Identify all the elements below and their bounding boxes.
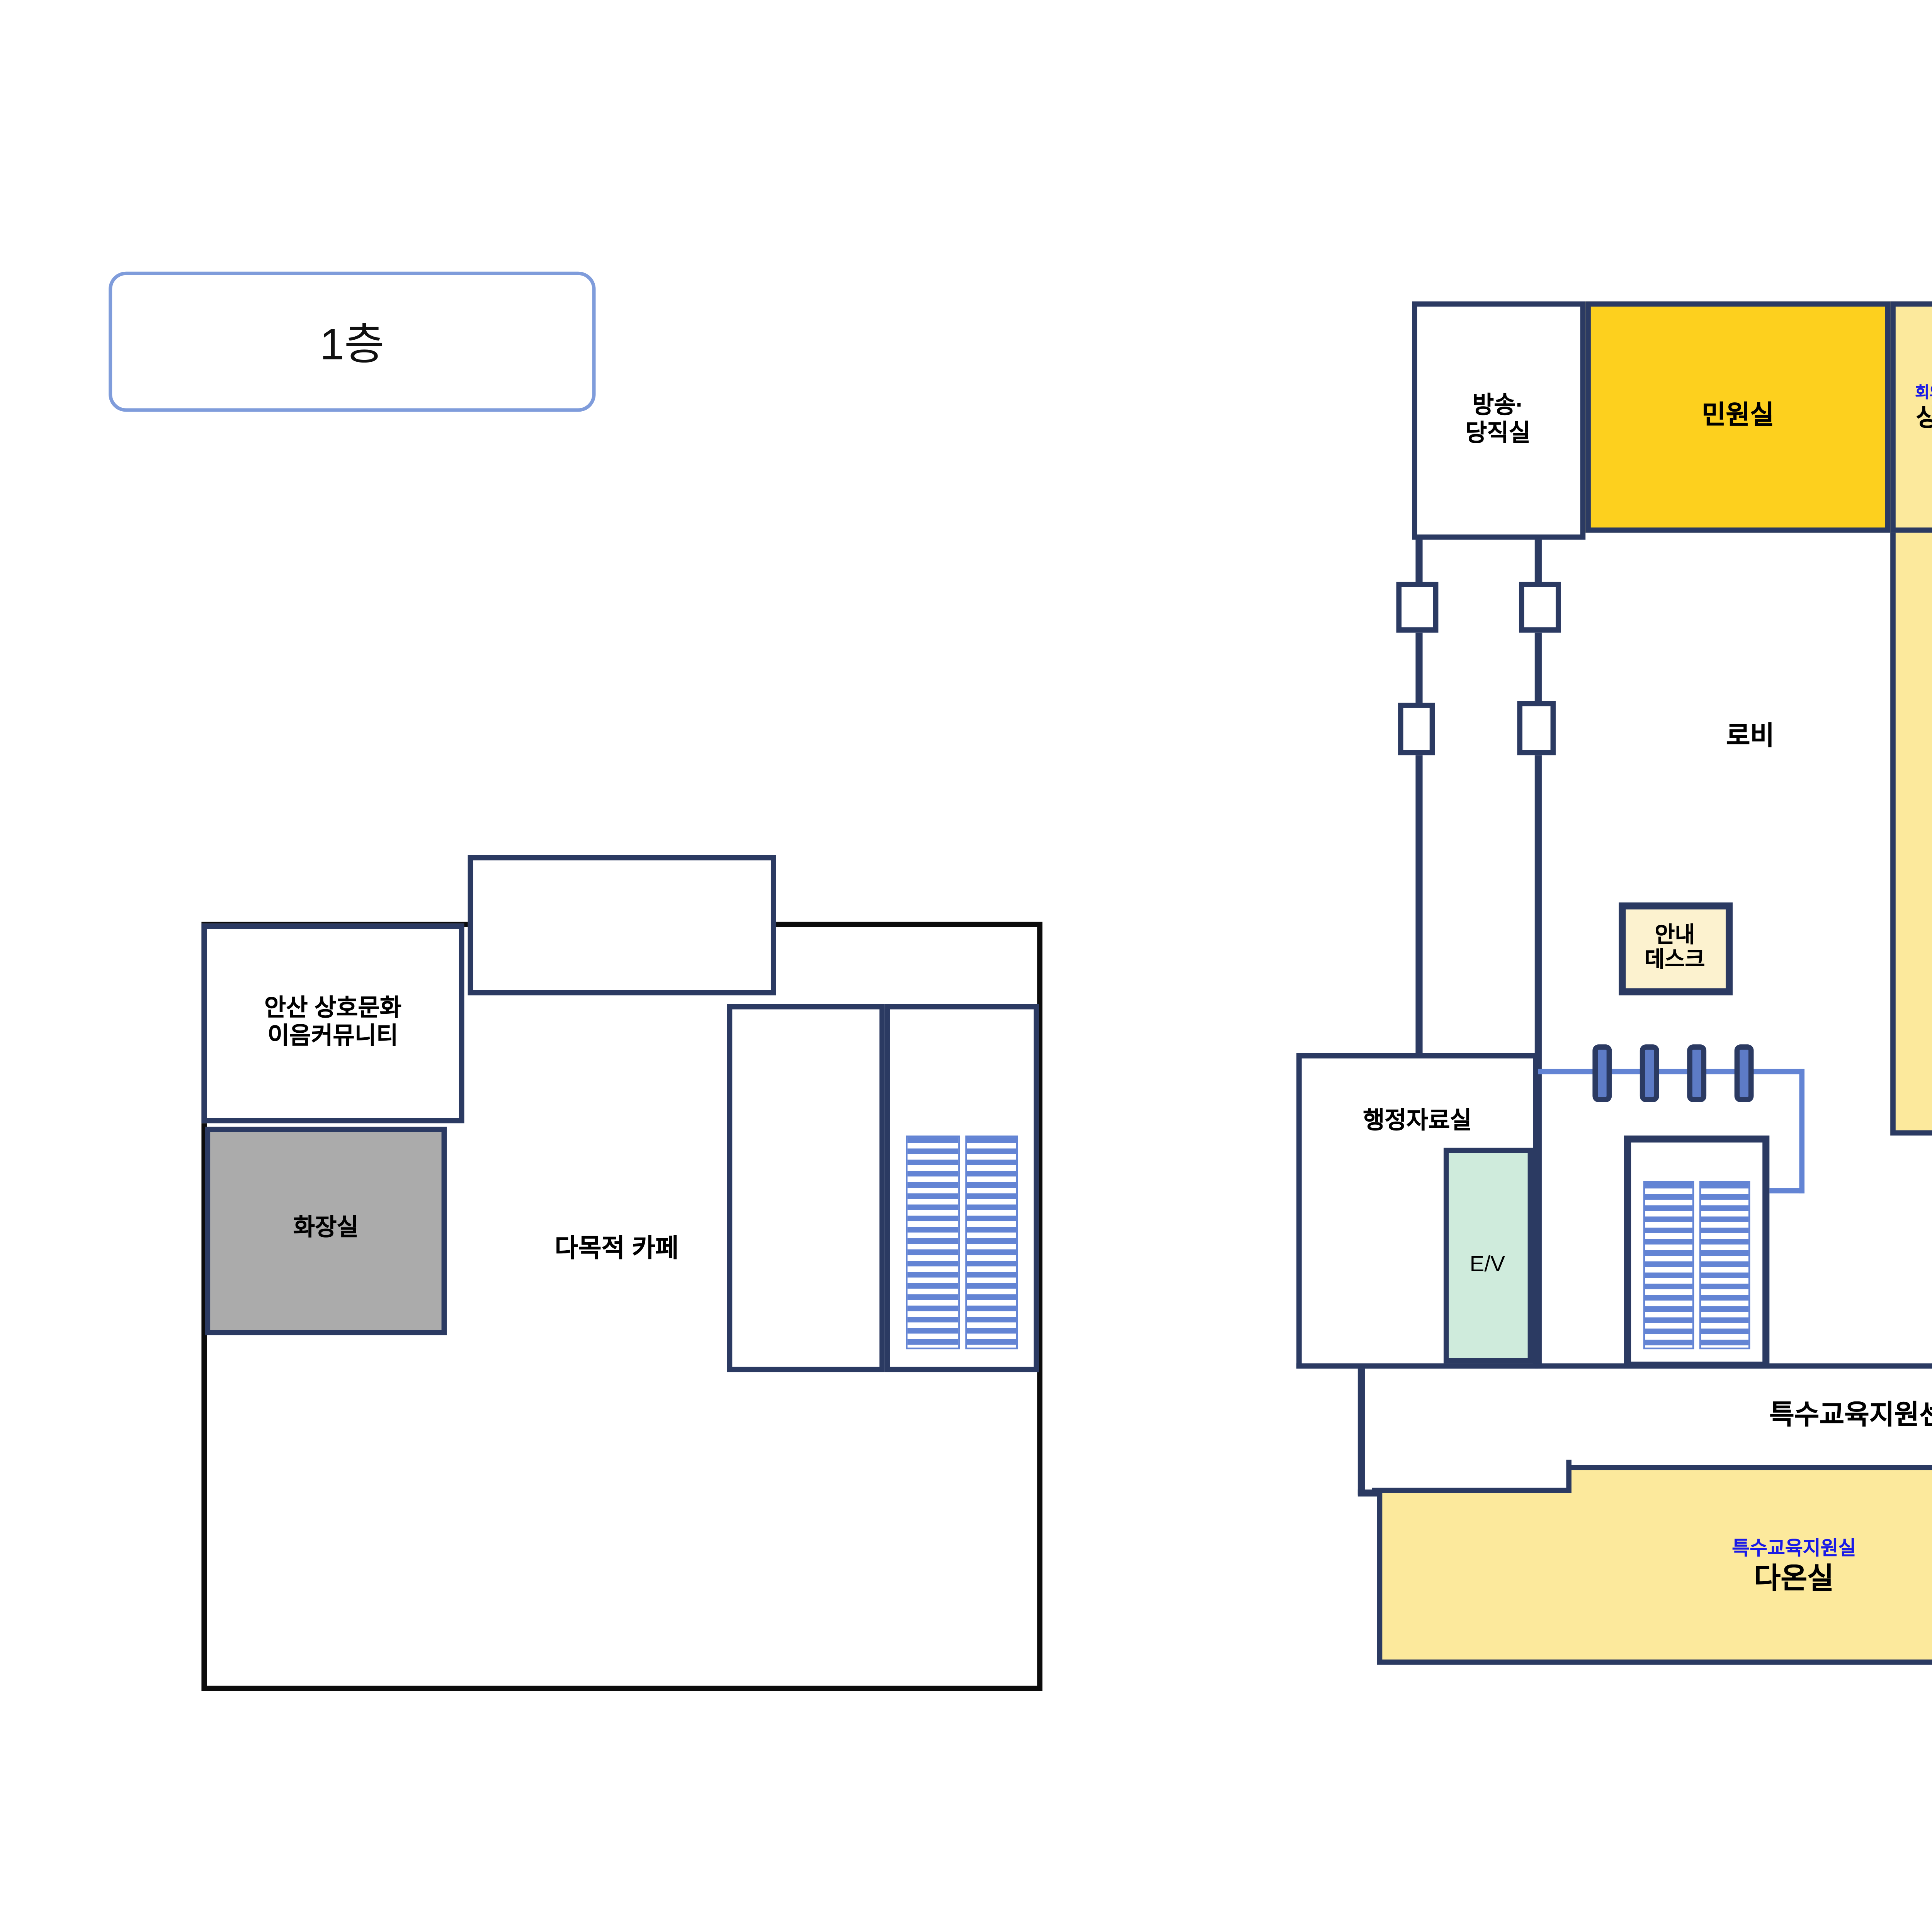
room-daon-label: 특수교육지원실 다온실 [1732, 1539, 1856, 1598]
turnstile-gate-icon [1735, 1044, 1754, 1102]
floor-badge: 1층 [109, 272, 595, 412]
room-daon-sub: 특수교육지원실 [1732, 1539, 1856, 1563]
floor-badge-label: 1층 [320, 310, 384, 373]
turnstile-gate-icon [1640, 1044, 1659, 1102]
room-elevator-text: E/V [1470, 1252, 1505, 1276]
room-community-label-line1: 안산 상호문화 [264, 994, 401, 1023]
stairs-icon [906, 1136, 1018, 1349]
room-minwon-text: 민원실 [1702, 401, 1774, 433]
room-broadcast-label: 방송· 당직실 [1465, 392, 1531, 449]
room-elevator-label: E/V [1470, 1252, 1505, 1279]
stairs-icon [1643, 1181, 1750, 1349]
info-desk-line1: 안내 [1645, 923, 1705, 948]
label-sped-center: 특수교육지원센터 [1769, 1401, 1932, 1434]
info-desk-label: 안내 데스크 [1645, 923, 1705, 973]
corridor-left-wall [1358, 1369, 1364, 1495]
room-daon-step [1372, 1460, 1571, 1493]
door-icon [1519, 582, 1561, 632]
turnstile-line [1799, 1069, 1804, 1193]
turnstile-gate-icon [1687, 1044, 1706, 1102]
room-admin-archive-text: 행정자료실 [1363, 1107, 1472, 1136]
room-toilet-left-text: 화장실 [293, 1214, 359, 1243]
room-meeting101-label: 회의실101 상록실 [1915, 384, 1932, 433]
corridor-top-wall [1296, 1362, 1932, 1369]
room-broadcast-line2: 당직실 [1465, 421, 1531, 449]
room-daon-name: 다온실 [1732, 1563, 1856, 1598]
label-cafe: 다목적 카페 [555, 1236, 679, 1267]
label-cafe-text: 다목적 카페 [555, 1236, 679, 1267]
stairs-icon-col [906, 1136, 959, 1349]
room-broadcast-line1: 방송· [1465, 392, 1531, 421]
turnstile-gate-icon [1592, 1044, 1612, 1102]
room-meeting101-name: 상록실 [1915, 403, 1932, 433]
door-icon [1398, 703, 1435, 755]
stairs-icon-col [1643, 1181, 1694, 1349]
info-desk-line2: 데스크 [1645, 948, 1705, 973]
turnstile-line [1538, 1069, 1804, 1074]
room-admin-archive-label: 행정자료실 [1363, 1107, 1472, 1136]
door-icon [1517, 701, 1556, 756]
room-minwon-label: 민원실 [1702, 401, 1774, 433]
turnstile-line [1769, 1188, 1804, 1193]
room-toilet-left-label: 화장실 [293, 1214, 359, 1243]
stairs-icon-col [964, 1136, 1018, 1349]
floor-plan-canvas: 1층 안산 상호문화 이음커뮤니티 화장실 다목적 카페 [0, 0, 1932, 1917]
room-community-label: 안산 상호문화 이음커뮤니티 [264, 994, 401, 1052]
door-icon [1396, 582, 1439, 632]
stairs-icon-col [1699, 1181, 1750, 1349]
room-community-label-line2: 이음커뮤니티 [264, 1023, 401, 1052]
label-lobby-text: 로비 [1726, 722, 1774, 754]
label-sped-center-text: 특수교육지원센터 [1769, 1401, 1932, 1434]
label-lobby: 로비 [1726, 722, 1774, 754]
left-small-room [727, 1004, 885, 1372]
left-annex-room [468, 855, 776, 996]
room-meeting101-sub: 회의실101 [1915, 384, 1932, 403]
